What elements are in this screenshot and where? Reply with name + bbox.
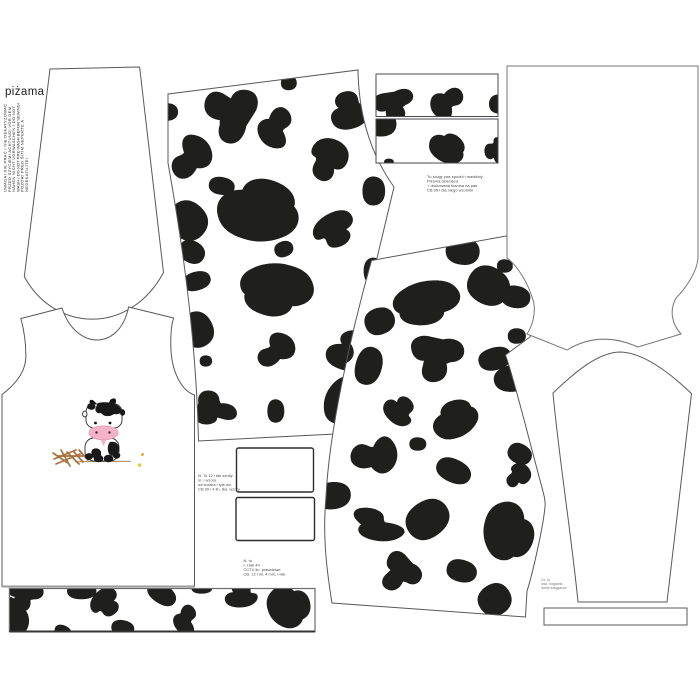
svg-text:NEDEKATUJTE!: NEDEKATUJTE!: [24, 158, 29, 192]
svg-text:dolne ściągacze: dolne ściągacze: [541, 586, 567, 590]
svg-text:CB.99 i dla niego wzorniki: CB.99 i dla niego wzorniki: [427, 188, 473, 193]
svg-text:piżama: piżama: [5, 86, 45, 98]
svg-text:CB.99 i 4 lin. tka. wzory: CB.99 i 4 lin. tka. wzory: [198, 487, 240, 492]
svg-text:CB. 12 i nil, 4 mm, i wlk.: CB. 12 i nil, 4 mm, i wlk.: [244, 572, 287, 577]
